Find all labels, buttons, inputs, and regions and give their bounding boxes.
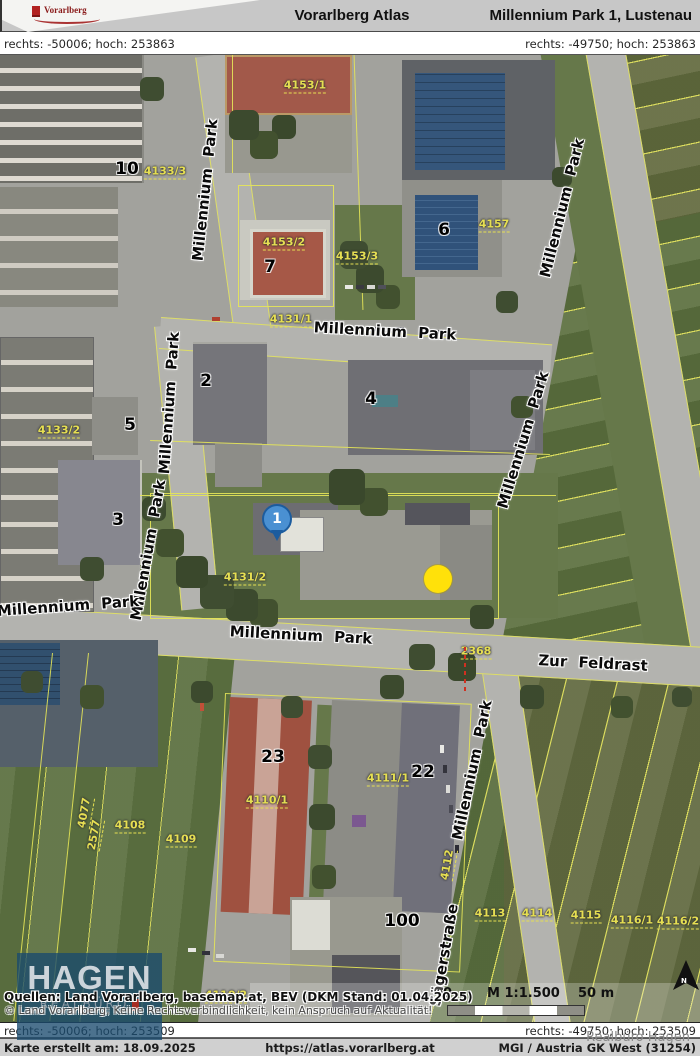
coord-top-left: rechts: -50006; hoch: 253863 xyxy=(4,33,175,55)
parcel-number-label: 4108 xyxy=(115,819,146,834)
cars-vertical xyxy=(0,55,4,63)
footer-created-date: Karte erstellt am: 18.09.2025 xyxy=(4,1041,196,1055)
scale-ratio-label: M 1:1.500 xyxy=(487,986,560,1001)
building-number-label: 2 xyxy=(200,371,212,391)
parcel-number-label: 4116/2 xyxy=(657,915,699,930)
parcel-number-label: 4133/2 xyxy=(38,424,80,439)
parcel-line xyxy=(232,55,233,173)
building-number-label: 7 xyxy=(264,257,276,277)
building-3-roof xyxy=(58,460,142,565)
yellow-point-marker[interactable] xyxy=(424,565,452,593)
coordinate-bar-top: rechts: -50006; hoch: 253863 rechts: -49… xyxy=(0,33,700,55)
parcel-number-label: 4133/3 xyxy=(144,165,186,180)
footer-url[interactable]: https://atlas.vorarlberg.at xyxy=(265,1041,434,1055)
parcel-boundary-4131-2 xyxy=(150,493,499,619)
building-warehouse-west xyxy=(0,187,118,307)
parcel-number-label: 4157 xyxy=(479,218,510,233)
parcel-number-label: 4111/1 xyxy=(367,772,409,787)
building-number-label: 5 xyxy=(124,415,136,435)
building-number-label: 3 xyxy=(112,510,124,530)
building-number-label: 4 xyxy=(365,389,377,409)
north-letter: N xyxy=(681,977,687,985)
map-attribution-disclaimer: © Land Vorarlberg; Keine Rechtsverbindli… xyxy=(4,1004,432,1017)
vorarlberg-atlas-window: Vorarlberg Vorarlberg Atlas Millennium P… xyxy=(0,0,700,1056)
scale-bar xyxy=(447,1005,585,1016)
parcel-number-label: 4115 xyxy=(571,909,602,924)
parcel-number-label: 4153/3 xyxy=(336,250,378,265)
building-number-label: 100 xyxy=(384,911,420,931)
north-arrow-icon: N xyxy=(672,960,700,996)
building-2-roof xyxy=(193,342,267,445)
header-bar: Vorarlberg Vorarlberg Atlas Millennium P… xyxy=(0,0,700,32)
survey-red-dashes xyxy=(464,643,466,691)
page-title-location: Millennium Park 1, Lustenau xyxy=(489,7,692,24)
building-annex-north xyxy=(225,115,352,173)
parcel-number-label: 4116/1 xyxy=(611,914,653,929)
building-6-solar-north xyxy=(415,73,505,170)
map-canvas[interactable]: 1 Millennium ParkMillennium ParkMillenni… xyxy=(0,55,700,1022)
parcel-number-label: 4153/1 xyxy=(284,79,326,94)
building-2-annex xyxy=(215,443,262,487)
parcel-number-label: 4110/1 xyxy=(246,794,288,809)
coord-top-right: rechts: -49750; hoch: 253863 xyxy=(525,33,696,55)
parcel-number-label: 4131/2 xyxy=(224,571,266,586)
building-number-label: 23 xyxy=(261,747,285,767)
building-number-label: 22 xyxy=(411,762,435,782)
parcel-number-label: 4153/2 xyxy=(263,236,305,251)
parcel-number-label: 4131/1 xyxy=(270,313,312,328)
map-attribution-sources: Quellen: Land Vorarlberg, basemap.at, BE… xyxy=(4,990,473,1004)
parcel-number-label: 4109 xyxy=(166,833,197,848)
location-pin-marker[interactable]: 1 xyxy=(262,504,292,534)
parcel-number-label: 4114 xyxy=(522,907,553,922)
parcel-boundary-south-block xyxy=(213,693,471,973)
parcel-number-label: 4113 xyxy=(475,907,506,922)
building-number-label: 10 xyxy=(115,159,139,179)
scale-distance-label: 50 m xyxy=(578,986,614,1001)
building-number-label: 6 xyxy=(438,220,450,240)
realbuero-hagen-watermark: Realbüro Hagen xyxy=(586,1030,690,1045)
